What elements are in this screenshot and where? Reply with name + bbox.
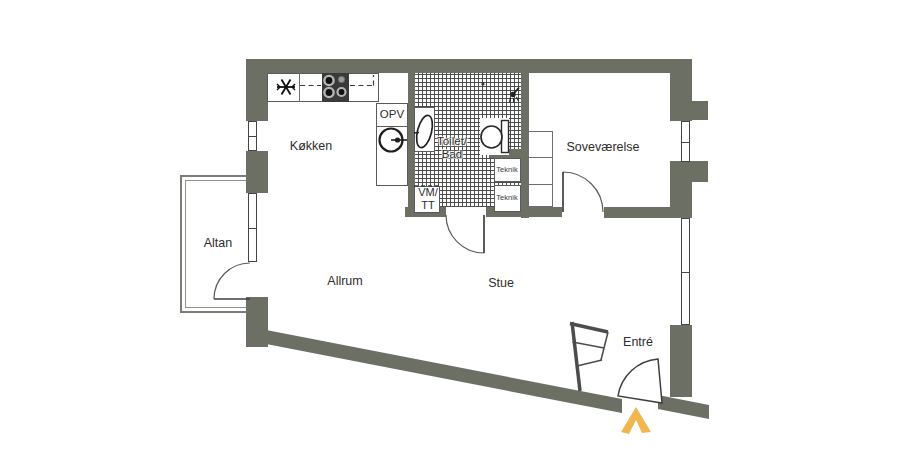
label-opv: OPV <box>380 108 404 121</box>
toilet-bad-line2: Bad <box>437 148 467 161</box>
room-label-altan: Altan <box>204 236 233 250</box>
room-label-entre: Entré <box>623 335 653 349</box>
wall-bottom-diagonal <box>261 329 622 413</box>
vm-tt-line2: TT <box>418 199 438 212</box>
bathroom-sink-icon <box>414 114 436 149</box>
balcony-door <box>214 263 250 299</box>
label-teknik-lower: Teknik <box>496 194 517 203</box>
fridge-snowflake-icon <box>277 80 295 95</box>
bathroom-door <box>446 215 484 253</box>
vm-tt-line1: VM/ <box>418 186 438 199</box>
kitchen-sink-icon <box>380 129 408 152</box>
plan-overlay <box>0 0 905 460</box>
toilet-icon <box>481 121 509 153</box>
floor-plan: Altan Køkken Allrum Stue Soveværelse Ent… <box>0 0 905 460</box>
room-label-kokken: Køkken <box>290 139 332 153</box>
floor-drain-icon <box>481 82 484 85</box>
room-label-stue: Stue <box>488 276 514 290</box>
room-label-allrum: Allrum <box>327 274 362 288</box>
upper-cabinet-dashed-line <box>300 75 374 86</box>
entrance-arrow-icon <box>621 407 651 434</box>
shower-icon <box>510 88 520 103</box>
bedroom-door <box>563 172 603 212</box>
label-vm-tt: VM/ TT <box>418 186 438 211</box>
room-label-toilet-bad: Toilet/ Bad <box>437 135 467 161</box>
wall-bottom-right-foot <box>658 395 709 419</box>
label-teknik-upper: Teknik <box>496 166 517 175</box>
entrance-wardrobe <box>570 322 608 391</box>
stove-burners-icon <box>324 76 345 97</box>
entrance-door <box>618 359 662 403</box>
room-label-sovevaerelse: Soveværelse <box>567 140 640 154</box>
toilet-bad-line1: Toilet/ <box>437 135 467 148</box>
